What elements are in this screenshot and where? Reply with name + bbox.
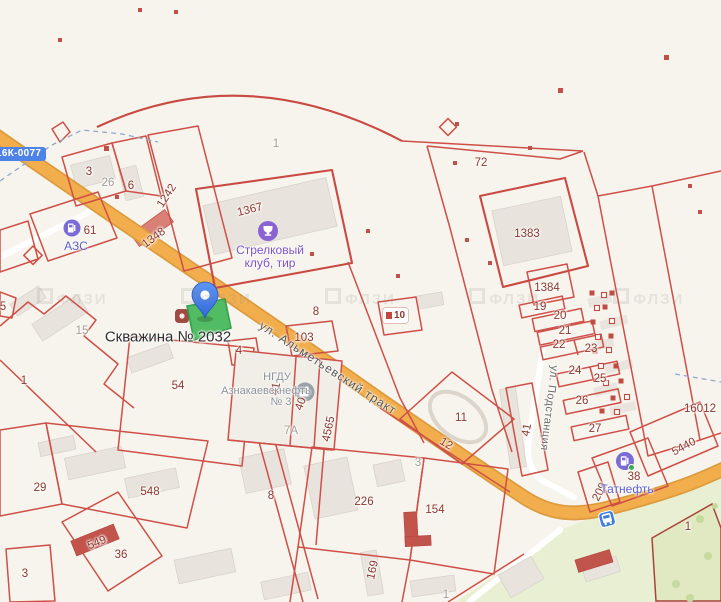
- parcel-label-21: 21: [559, 325, 572, 337]
- parcel-label-25: 25: [594, 373, 607, 385]
- poi-label-ngdu-line2[interactable]: Азнакаевскнефть: [221, 385, 311, 397]
- poi-label-azs[interactable]: АЗС: [64, 239, 88, 253]
- parcel-label-11: 11: [455, 412, 467, 424]
- parcel-label-1: 1: [443, 589, 449, 601]
- parcel-label-3: 3: [22, 568, 28, 580]
- parcel-label-41: 41: [520, 423, 534, 438]
- parcel-label-26: 26: [102, 177, 115, 189]
- parcel-label-8: 8: [313, 306, 319, 318]
- fuel-station-icon[interactable]: [64, 220, 81, 237]
- parcel-label-23: 23: [585, 343, 598, 355]
- fuel-station-icon[interactable]: [616, 452, 635, 471]
- parcel-label-22: 22: [553, 339, 566, 351]
- selected-object-label[interactable]: Скважина № 2032: [105, 329, 231, 346]
- parcel-label-4: 4: [236, 345, 242, 357]
- poi-label-ngdu-line1[interactable]: НГДУ: [263, 371, 291, 383]
- map-canvas[interactable]: ФЛЗИ ФЛЗИ ФЛЗИ ФЛЗИ ФЛЗИ 532661242134861…: [0, 0, 721, 602]
- parcel-label-1: 1: [685, 521, 691, 533]
- parcel-label-1384: 1384: [534, 282, 560, 294]
- landmark-chip: 10: [383, 308, 408, 323]
- poi-label-shooting-club-line1[interactable]: Стрелковый: [236, 243, 304, 257]
- poi-label-tatneft[interactable]: Татнефть: [600, 482, 653, 496]
- parcel-label-154: 154: [425, 504, 444, 516]
- parcel-label-26: 26: [576, 395, 589, 407]
- parcel-label-72: 72: [475, 157, 488, 169]
- map-vector-layer: [0, 0, 721, 602]
- parcel-label-226: 226: [354, 496, 373, 508]
- parcel-label-1: 1: [21, 375, 27, 387]
- parcel-label-29: 29: [34, 482, 47, 494]
- parcel-label-61: 61: [84, 225, 97, 237]
- poi-label-shooting-club-line2[interactable]: клуб, тир: [245, 256, 296, 270]
- poi-label-ngdu-line3[interactable]: № 3: [271, 396, 292, 408]
- small-poi-icon[interactable]: [176, 310, 189, 323]
- parcel-label-54: 54: [172, 380, 185, 392]
- parcel-label-103: 103: [294, 332, 313, 344]
- road-number-badge: 16К-0077: [0, 147, 46, 161]
- building-icon: [386, 312, 392, 319]
- trophy-icon[interactable]: [258, 221, 278, 241]
- landmark-chip-number: 10: [394, 311, 405, 321]
- parcel-label-19: 19: [534, 301, 547, 313]
- parcel-label-3: 3: [415, 457, 421, 469]
- parcel-label-6: 6: [128, 180, 134, 192]
- parcel-label-5: 5: [0, 301, 6, 313]
- parcel-label-16012: 16012: [684, 403, 716, 415]
- parcel-label-27: 27: [589, 423, 602, 435]
- parcel-label-15: 15: [76, 325, 89, 337]
- parcel-label-36: 36: [115, 549, 128, 561]
- parcel-label-548: 548: [140, 486, 159, 498]
- parcel-label-1: 1: [273, 138, 279, 150]
- bus-stop-icon[interactable]: [598, 510, 616, 528]
- parcel-label-7А: 7А: [284, 425, 298, 437]
- parcel-label-24: 24: [569, 365, 582, 377]
- parcel-label-20: 20: [554, 310, 567, 322]
- parcel-label-1383: 1383: [514, 228, 540, 240]
- parcel-label-8: 8: [268, 490, 274, 502]
- parcel-label-3: 3: [86, 166, 92, 178]
